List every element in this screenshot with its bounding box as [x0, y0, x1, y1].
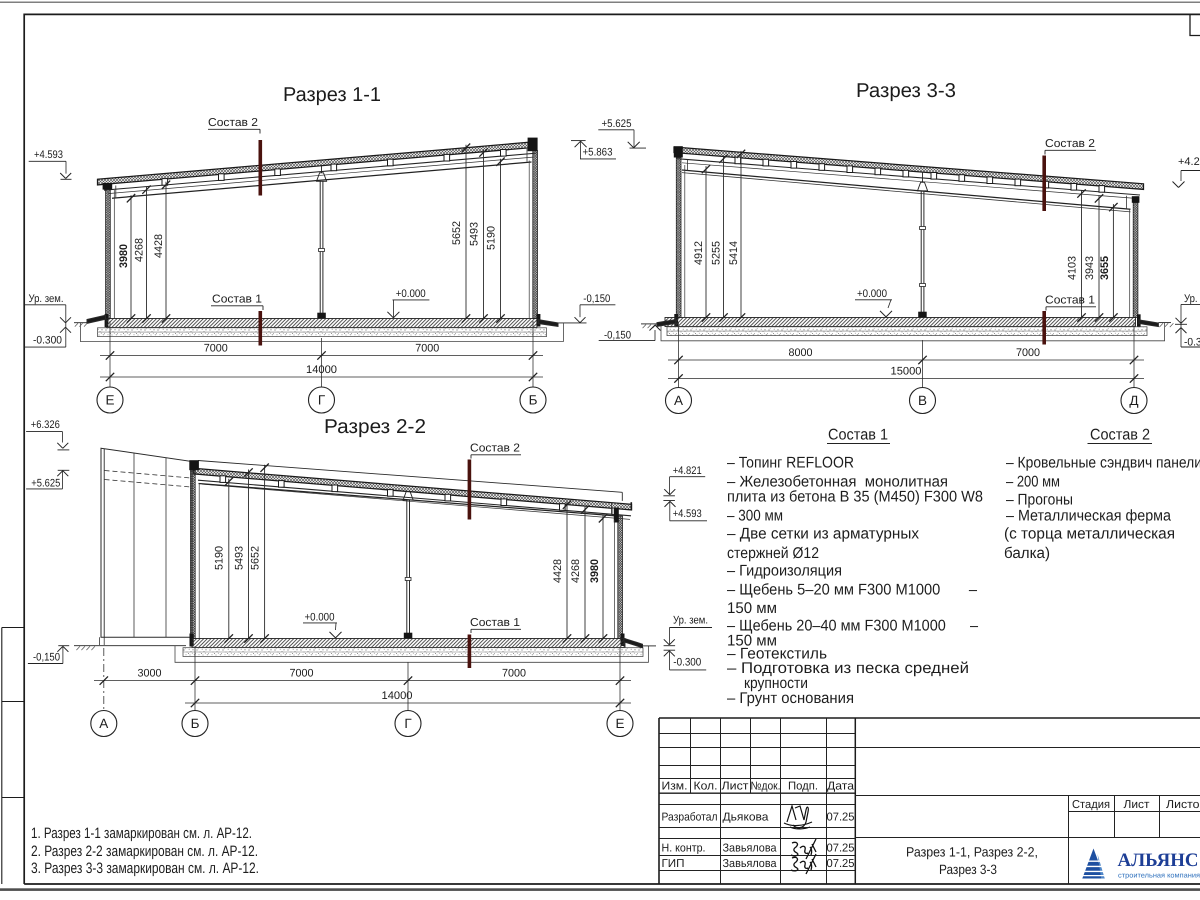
- svg-text:7000: 7000: [204, 343, 228, 355]
- svg-text:3943: 3943: [1084, 256, 1096, 280]
- svg-text:2. Разрез 2-2 замаркирован см.: 2. Разрез 2-2 замаркирован см. л. АР-12.: [31, 843, 258, 860]
- svg-text:5493: 5493: [233, 546, 245, 570]
- svg-text:Состав 2: Состав 2: [1045, 138, 1095, 150]
- svg-text:стержней Ø12: стержней Ø12: [727, 545, 819, 562]
- svg-text:1. Разрез 1-1 замаркирован см.: 1. Разрез 1-1 замаркирован см. л. АР-12.: [31, 825, 252, 842]
- svg-text:-0,150: -0,150: [604, 329, 631, 341]
- svg-text:3000: 3000: [138, 668, 162, 680]
- svg-text:+5.625: +5.625: [602, 118, 632, 130]
- svg-text:4428: 4428: [552, 559, 564, 583]
- svg-text:4428: 4428: [153, 234, 165, 258]
- svg-text:– Металлическая ферма: – Металлическая ферма: [1006, 508, 1171, 525]
- svg-text:Завьялова: Завьялова: [723, 843, 778, 855]
- svg-text:7000: 7000: [1016, 347, 1040, 359]
- svg-text:Завьялова: Завьялова: [723, 858, 778, 870]
- svg-text:8000: 8000: [789, 347, 813, 359]
- svg-text:Листов: Листов: [1166, 799, 1200, 811]
- svg-text:Подп.: Подп.: [788, 780, 818, 792]
- svg-text:14000: 14000: [306, 364, 337, 376]
- svg-text:строительная компания: строительная компания: [1118, 873, 1200, 880]
- svg-text:Ур. зем.: Ур. зем.: [29, 293, 64, 305]
- svg-text:АЛЬЯНС: АЛЬЯНС: [1118, 850, 1199, 871]
- svg-text:Е: Е: [615, 716, 624, 731]
- svg-text:А: А: [674, 393, 683, 408]
- svg-text:Состав 1: Состав 1: [470, 617, 520, 629]
- svg-text:+0.000: +0.000: [857, 288, 887, 300]
- svg-text:+4.593: +4.593: [673, 508, 702, 520]
- svg-text:Состав 1: Состав 1: [828, 427, 888, 444]
- svg-text:7000: 7000: [415, 343, 439, 355]
- svg-text:4268: 4268: [570, 559, 582, 583]
- svg-text:7000: 7000: [290, 668, 314, 680]
- svg-text:– Кровельные сэндвич панели: – Кровельные сэндвич панели: [1006, 455, 1200, 472]
- svg-text:Разрез 3-3: Разрез 3-3: [856, 80, 956, 102]
- svg-text:– Топинг REFLOOR: – Топинг REFLOOR: [727, 455, 854, 472]
- svg-text:5652: 5652: [451, 221, 463, 245]
- svg-text:5255: 5255: [710, 241, 722, 265]
- svg-text:-0.300: -0.300: [673, 657, 701, 669]
- svg-text:-0,150: -0,150: [33, 652, 60, 664]
- svg-text:5652: 5652: [249, 546, 261, 570]
- svg-text:+6.326: +6.326: [31, 419, 60, 431]
- svg-text:+5.625: +5.625: [31, 478, 60, 490]
- svg-text:плита из бетона В 35 (М450) F3: плита из бетона В 35 (М450) F300 W8: [727, 489, 983, 506]
- svg-text:15000: 15000: [891, 366, 922, 378]
- svg-text:Состав 2: Состав 2: [470, 443, 520, 455]
- svg-text:+4.821: +4.821: [673, 465, 702, 477]
- svg-text:Дьякова: Дьякова: [723, 812, 770, 824]
- svg-text:5414: 5414: [728, 241, 740, 265]
- svg-text:балка): балка): [1004, 545, 1050, 562]
- svg-text:Б: Б: [529, 393, 538, 408]
- svg-text:Ур. зем.: Ур. зем.: [673, 615, 708, 627]
- svg-text:Дата: Дата: [827, 780, 855, 792]
- svg-text:В: В: [918, 393, 927, 408]
- svg-text:Г: Г: [318, 393, 326, 408]
- svg-text:5190: 5190: [485, 226, 497, 250]
- svg-text:Состав 2: Состав 2: [1090, 427, 1150, 444]
- svg-text:+4.296: +4.296: [1178, 156, 1200, 168]
- svg-text:– Щебень 5–20 мм F300 М1000: – Щебень 5–20 мм F300 М1000 –: [727, 582, 977, 599]
- svg-text:Изм.: Изм.: [662, 780, 688, 792]
- svg-text:Е: Е: [105, 393, 114, 408]
- svg-text:7000: 7000: [502, 668, 526, 680]
- svg-text:-0.300: -0.300: [33, 334, 62, 346]
- svg-text:– Гидроизоляция: – Гидроизоляция: [727, 563, 842, 580]
- svg-text:А: А: [99, 716, 108, 731]
- svg-text:3980: 3980: [589, 559, 601, 583]
- svg-text:Разрез 1-1: Разрез 1-1: [283, 84, 381, 106]
- svg-text:– Прогоны: – Прогоны: [1006, 492, 1073, 509]
- svg-text:5190: 5190: [214, 546, 226, 570]
- svg-text:07.25: 07.25: [827, 812, 855, 824]
- svg-text:Лист: Лист: [722, 780, 750, 792]
- svg-text:07.25: 07.25: [827, 843, 855, 855]
- svg-text:+5.863: +5.863: [583, 147, 613, 159]
- svg-text:Состав 2: Состав 2: [208, 117, 258, 129]
- svg-text:Состав 1: Состав 1: [1045, 295, 1095, 307]
- svg-text:3655: 3655: [1099, 256, 1111, 280]
- svg-text:Д: Д: [1129, 393, 1138, 408]
- svg-text:№док.: №док.: [751, 780, 781, 792]
- svg-text:4268: 4268: [133, 238, 145, 262]
- svg-text:Состав 1: Состав 1: [212, 294, 262, 306]
- svg-text:Разрез 2-2: Разрез 2-2: [324, 416, 426, 438]
- svg-text:Г: Г: [404, 716, 412, 731]
- svg-text:+0.000: +0.000: [305, 612, 335, 624]
- svg-text:Кол.: Кол.: [694, 780, 718, 792]
- svg-text:14000: 14000: [382, 690, 413, 702]
- svg-text:4912: 4912: [693, 241, 705, 265]
- svg-text:150 мм: 150 мм: [727, 600, 777, 617]
- svg-text:ГИП: ГИП: [662, 858, 685, 870]
- svg-text:+4.593: +4.593: [34, 149, 63, 161]
- svg-text:5493: 5493: [468, 222, 480, 246]
- svg-text:07.25: 07.25: [827, 858, 855, 870]
- svg-text:(с торца металлическая: (с торца металлическая: [1004, 526, 1175, 543]
- svg-text:4103: 4103: [1066, 256, 1078, 280]
- svg-text:3980: 3980: [118, 244, 130, 268]
- svg-text:Б: Б: [191, 716, 200, 731]
- svg-text:Н. контр.: Н. контр.: [662, 843, 706, 855]
- svg-text:-0,150: -0,150: [583, 293, 610, 305]
- svg-text:Разрез 1-1, Разрез 2-2,: Разрез 1-1, Разрез 2-2,: [906, 845, 1038, 860]
- svg-text:– Грунт основания: – Грунт основания: [727, 690, 854, 707]
- svg-text:– Две сетки из арматурных: – Две сетки из арматурных: [727, 526, 919, 543]
- svg-text:Лист: Лист: [1124, 799, 1151, 811]
- svg-text:Стадия: Стадия: [1072, 799, 1110, 811]
- svg-text:3. Разрез 3-3 замаркирован см.: 3. Разрез 3-3 замаркирован см. л. АР-12.: [31, 860, 259, 877]
- svg-text:+0.000: +0.000: [396, 288, 426, 300]
- svg-text:Разрез 3-3: Разрез 3-3: [939, 862, 997, 877]
- svg-text:Разработал: Разработал: [662, 812, 718, 824]
- svg-text:Ур. зем.: Ур. зем.: [1184, 293, 1200, 305]
- svg-text:– 200 мм: – 200 мм: [1006, 474, 1060, 491]
- svg-text:– 300 мм: – 300 мм: [727, 508, 783, 525]
